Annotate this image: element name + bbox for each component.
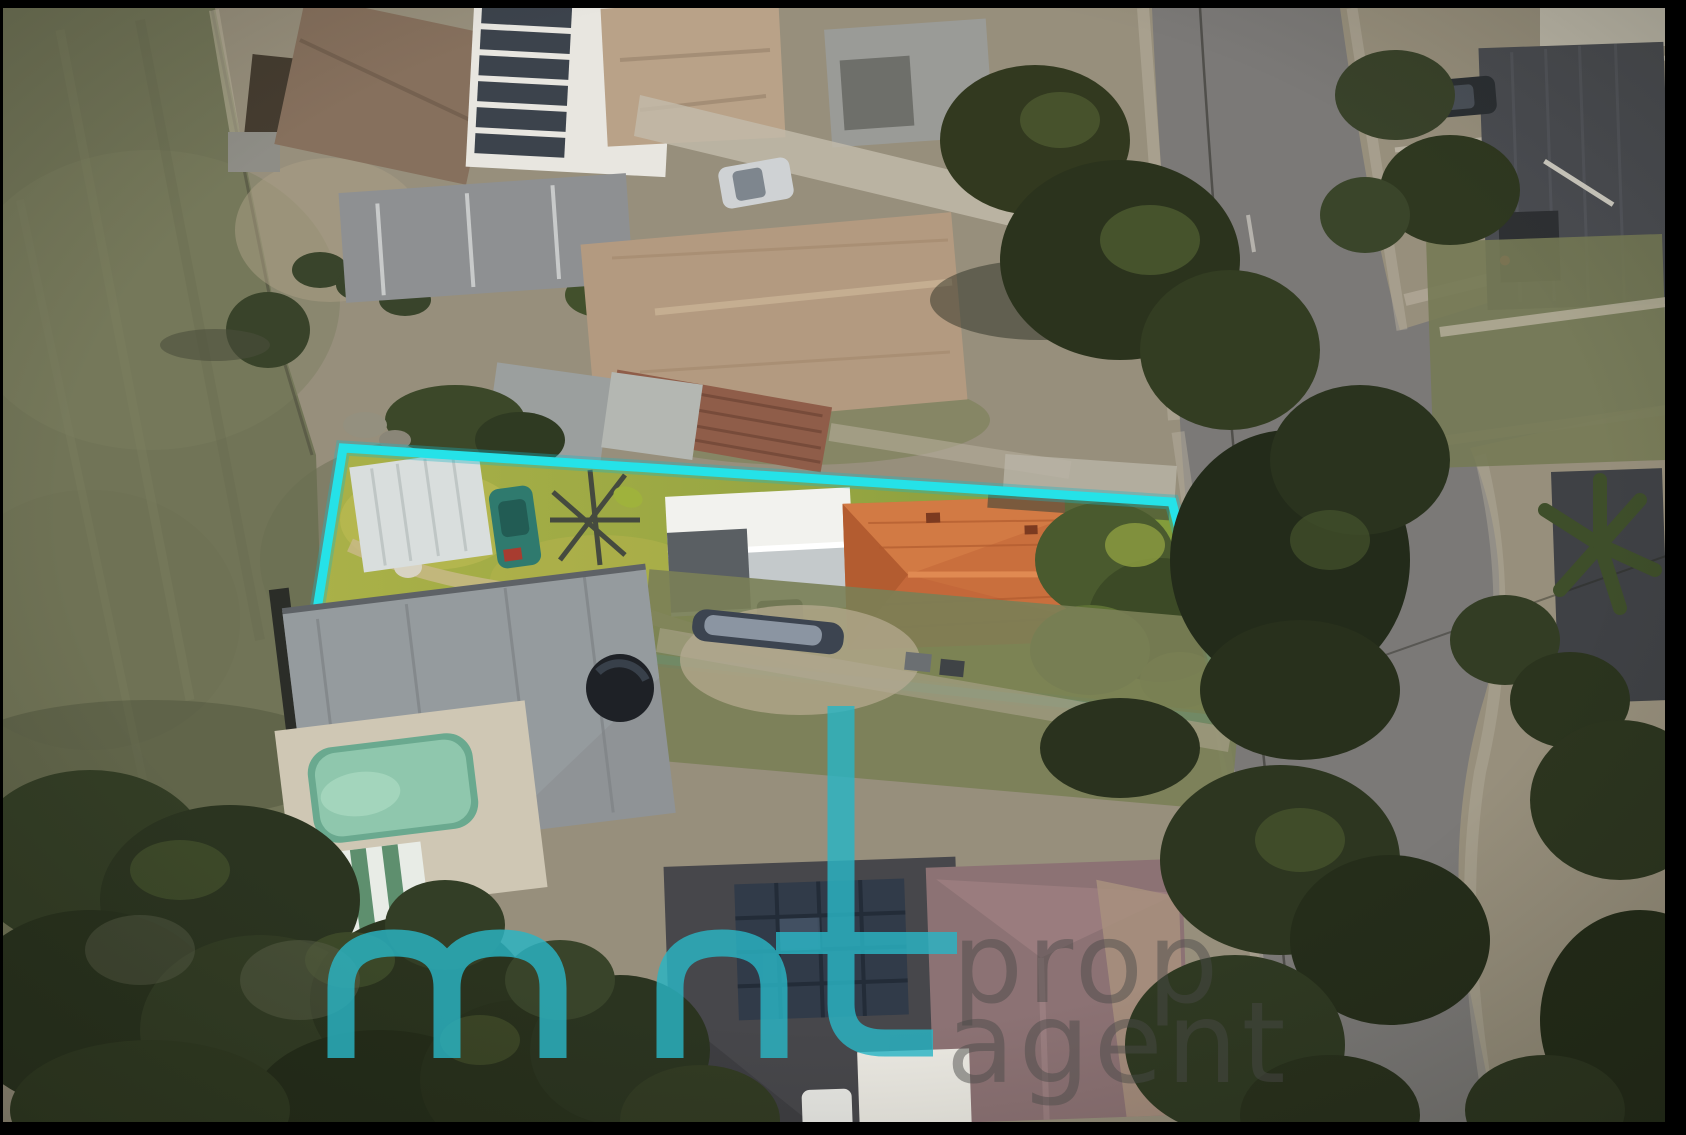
- frame-bar-bottom: [0, 1122, 1686, 1135]
- frame-bar-top: [0, 0, 1686, 8]
- frame-bar-left: [0, 0, 3, 1135]
- aerial-photo: prop agent: [0, 0, 1686, 1135]
- watermark-caption-2: agent: [946, 979, 1290, 1109]
- screenshot-root: prop agent: [0, 0, 1686, 1135]
- frame-bar-right: [1665, 0, 1686, 1135]
